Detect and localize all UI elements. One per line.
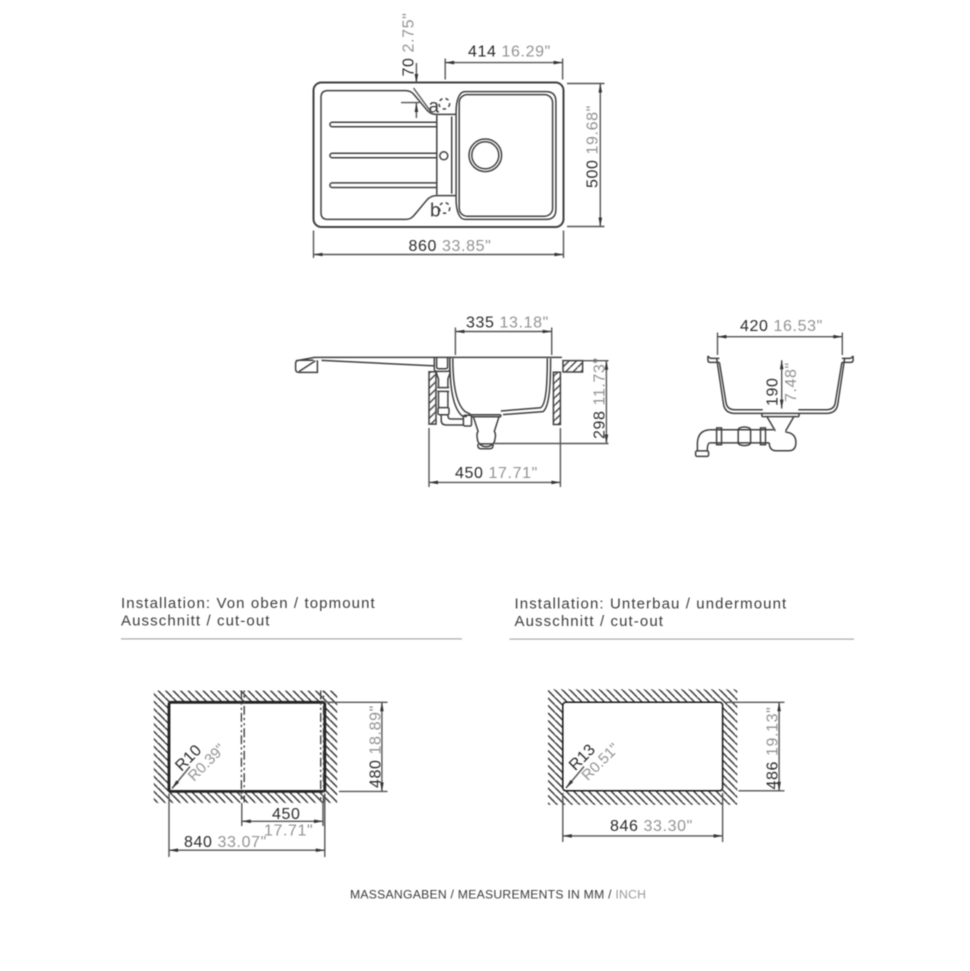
svg-text:Installation: Unterbau / under: Installation: Unterbau / undermount — [515, 596, 788, 613]
svg-text:420 16.53": 420 16.53" — [740, 318, 823, 335]
svg-text:414 16.29": 414 16.29" — [468, 44, 551, 61]
svg-text:450 17.71": 450 17.71" — [455, 465, 538, 482]
svg-text:b: b — [430, 201, 441, 222]
svg-text:a: a — [429, 97, 440, 118]
svg-text:70 2.75": 70 2.75" — [401, 13, 418, 77]
svg-text:500 19.68": 500 19.68" — [585, 105, 602, 188]
svg-text:298 11.73": 298 11.73" — [592, 357, 609, 439]
svg-text:Ausschnitt / cut-out: Ausschnitt / cut-out — [515, 613, 665, 630]
svg-text:450: 450 — [272, 806, 301, 823]
svg-text:Installation: Von oben / topmo: Installation: Von oben / topmount — [121, 595, 376, 612]
svg-text:Ausschnitt / cut-out: Ausschnitt / cut-out — [121, 613, 271, 630]
svg-text:MASSANGABEN / MEASUREMENTS IN: MASSANGABEN / MEASUREMENTS IN MM / INCH — [350, 888, 646, 902]
svg-text:190: 190 — [765, 378, 782, 407]
svg-text:846 33.30": 846 33.30" — [610, 818, 693, 835]
svg-text:486 19.13": 486 19.13" — [765, 707, 782, 790]
svg-text:480 18.89": 480 18.89" — [367, 705, 384, 788]
svg-text:7.48": 7.48" — [783, 362, 800, 402]
svg-text:840 33.07": 840 33.07" — [184, 834, 267, 851]
svg-text:17.71": 17.71" — [264, 823, 313, 840]
svg-text:860 33.85": 860 33.85" — [409, 238, 492, 255]
svg-text:335 13.18": 335 13.18" — [466, 315, 549, 332]
